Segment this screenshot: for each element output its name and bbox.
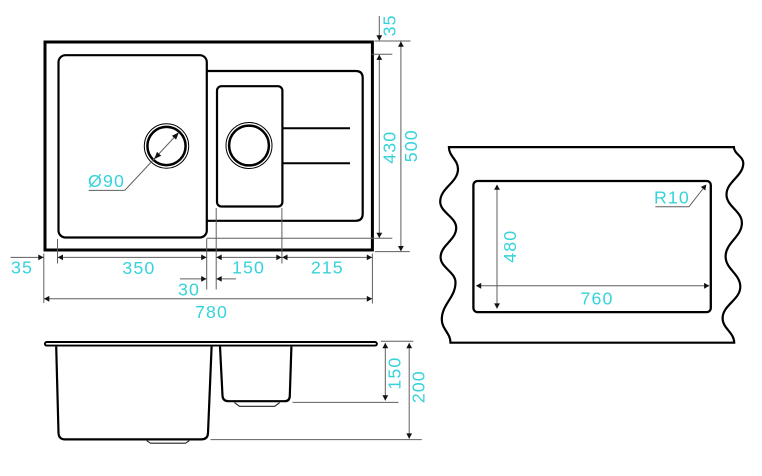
svg-text:430: 430 bbox=[379, 131, 399, 164]
svg-text:350: 350 bbox=[122, 258, 155, 278]
svg-text:150: 150 bbox=[384, 357, 404, 390]
svg-text:Ø90: Ø90 bbox=[88, 171, 125, 191]
svg-text:215: 215 bbox=[311, 258, 344, 278]
svg-text:500: 500 bbox=[401, 129, 421, 162]
svg-text:35: 35 bbox=[380, 14, 400, 36]
svg-text:35: 35 bbox=[11, 258, 33, 278]
svg-text:480: 480 bbox=[500, 230, 520, 263]
svg-text:760: 760 bbox=[581, 289, 614, 309]
svg-text:R10: R10 bbox=[654, 188, 690, 208]
svg-text:780: 780 bbox=[195, 302, 228, 322]
svg-text:150: 150 bbox=[232, 258, 265, 278]
svg-text:200: 200 bbox=[409, 370, 429, 403]
svg-text:30: 30 bbox=[178, 279, 200, 299]
